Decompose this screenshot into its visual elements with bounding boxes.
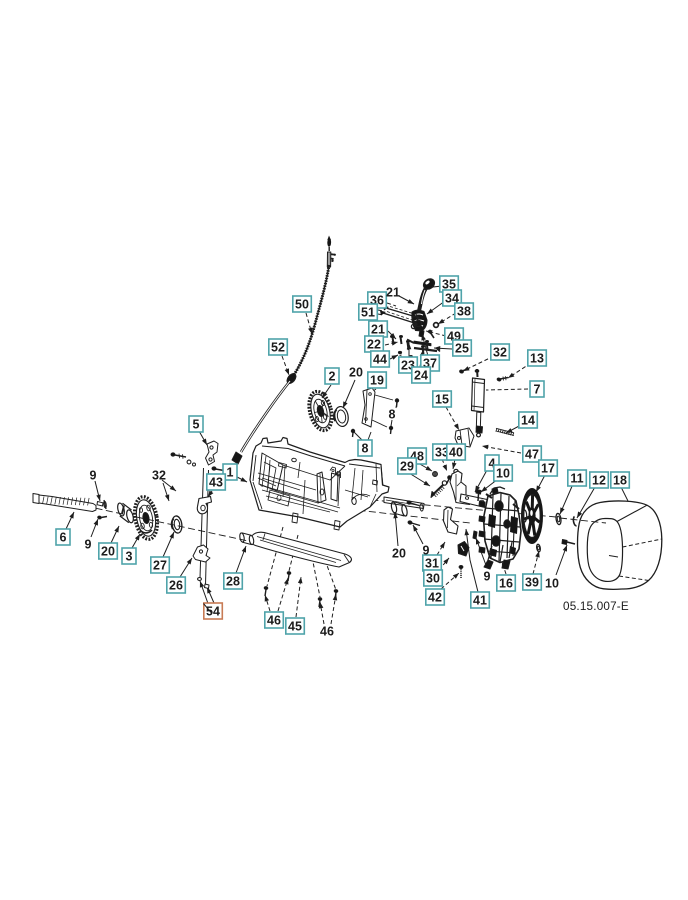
svg-text:1: 1 bbox=[227, 466, 234, 480]
svg-text:46: 46 bbox=[267, 614, 281, 628]
svg-text:8: 8 bbox=[362, 442, 369, 456]
svg-text:24: 24 bbox=[414, 369, 428, 383]
svg-text:44: 44 bbox=[373, 353, 387, 367]
svg-text:21: 21 bbox=[386, 286, 400, 300]
svg-text:8: 8 bbox=[389, 408, 396, 422]
svg-text:42: 42 bbox=[428, 591, 442, 605]
svg-text:46: 46 bbox=[320, 625, 334, 639]
svg-text:10: 10 bbox=[545, 577, 559, 591]
svg-text:40: 40 bbox=[449, 446, 463, 460]
svg-text:25: 25 bbox=[455, 342, 469, 356]
svg-text:17: 17 bbox=[541, 462, 555, 476]
svg-text:26: 26 bbox=[169, 579, 183, 593]
svg-text:7: 7 bbox=[534, 383, 541, 397]
svg-text:15: 15 bbox=[435, 393, 449, 407]
svg-text:31: 31 bbox=[425, 557, 439, 571]
svg-text:39: 39 bbox=[525, 576, 539, 590]
svg-text:20: 20 bbox=[392, 547, 406, 561]
svg-text:21: 21 bbox=[371, 323, 385, 337]
svg-text:47: 47 bbox=[525, 448, 539, 462]
svg-text:43: 43 bbox=[209, 476, 223, 490]
svg-text:9: 9 bbox=[484, 570, 491, 584]
svg-text:22: 22 bbox=[367, 338, 381, 352]
svg-text:2: 2 bbox=[329, 370, 336, 384]
svg-text:30: 30 bbox=[426, 572, 440, 586]
svg-text:9: 9 bbox=[90, 469, 97, 483]
svg-text:20: 20 bbox=[349, 366, 363, 380]
svg-text:29: 29 bbox=[400, 460, 414, 474]
svg-text:10: 10 bbox=[496, 467, 510, 481]
svg-text:28: 28 bbox=[226, 575, 240, 589]
svg-text:05.15.007-E: 05.15.007-E bbox=[563, 600, 629, 613]
svg-text:11: 11 bbox=[570, 472, 583, 486]
svg-text:32: 32 bbox=[493, 346, 507, 360]
svg-text:19: 19 bbox=[370, 374, 384, 388]
svg-text:13: 13 bbox=[530, 352, 544, 366]
svg-text:9: 9 bbox=[423, 544, 430, 558]
svg-text:9: 9 bbox=[85, 538, 92, 552]
svg-text:52: 52 bbox=[271, 341, 285, 355]
svg-text:51: 51 bbox=[361, 306, 375, 320]
svg-text:45: 45 bbox=[288, 620, 302, 634]
svg-text:50: 50 bbox=[295, 298, 309, 312]
svg-text:18: 18 bbox=[613, 474, 627, 488]
svg-text:41: 41 bbox=[473, 594, 487, 608]
svg-text:54: 54 bbox=[206, 605, 220, 619]
svg-text:5: 5 bbox=[193, 418, 200, 432]
svg-text:3: 3 bbox=[126, 550, 133, 564]
svg-text:32: 32 bbox=[152, 469, 166, 483]
svg-text:16: 16 bbox=[499, 577, 513, 591]
svg-text:12: 12 bbox=[592, 474, 606, 488]
svg-text:27: 27 bbox=[153, 559, 167, 573]
svg-text:20: 20 bbox=[101, 545, 115, 559]
svg-text:38: 38 bbox=[457, 305, 471, 319]
svg-text:14: 14 bbox=[521, 414, 535, 428]
svg-text:6: 6 bbox=[60, 531, 67, 545]
